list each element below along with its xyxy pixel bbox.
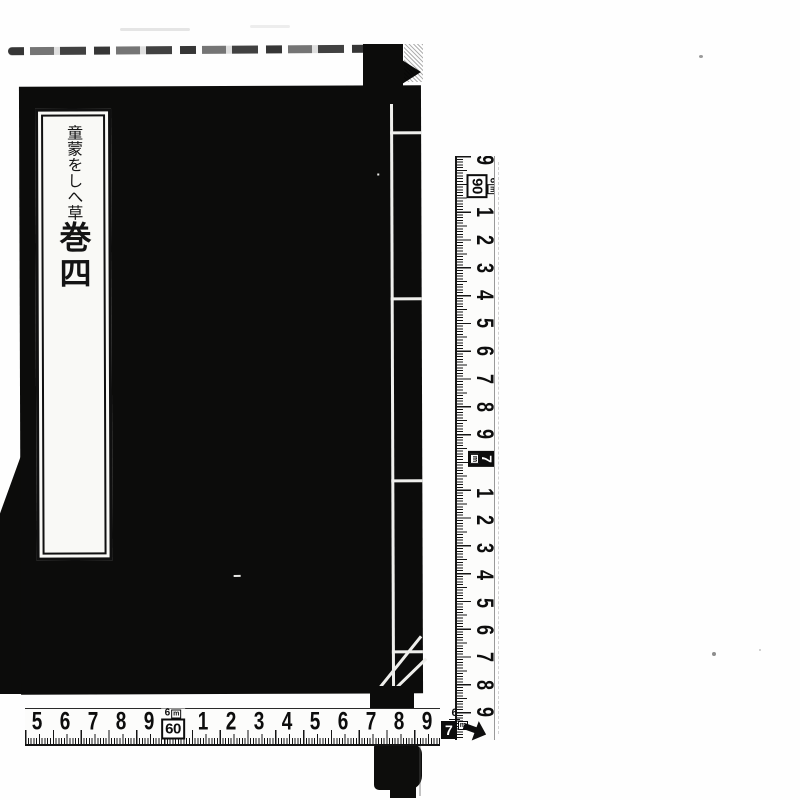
- scan-noise-streak: [8, 45, 368, 56]
- ruler-number: 7: [366, 710, 377, 735]
- ruler-number: 3: [472, 263, 495, 273]
- meter-value: 6: [449, 708, 459, 720]
- ruler-number: 6: [472, 346, 495, 356]
- ruler-number: 9: [472, 707, 495, 717]
- meter-unit: m: [470, 454, 479, 464]
- ruler-number: 3: [254, 710, 265, 735]
- cover-speck: [377, 173, 379, 175]
- title-label-text: 童蒙をしへ草巻四: [57, 116, 91, 552]
- book-cover: 童蒙をしへ草巻四: [19, 85, 423, 694]
- ruler-number-partial: 9: [472, 156, 495, 165]
- meter-marker-6m60: 6m60: [161, 709, 185, 740]
- binding-thread-horizontal-3: [391, 479, 422, 482]
- title-label-inner-border: 童蒙をしへ草巻四: [41, 114, 107, 554]
- meter-marker-header: 6m: [165, 709, 182, 719]
- ruler-number: 8: [472, 680, 495, 690]
- bottom-clamp-shadow: [419, 744, 421, 796]
- ruler-number: 5: [32, 710, 43, 735]
- scan-speck: [759, 649, 761, 651]
- scan-speck: [699, 55, 703, 58]
- ruler-number: 4: [472, 570, 495, 580]
- ruler-number: 8: [394, 710, 405, 735]
- ruler-number: 2: [226, 710, 237, 735]
- ruler-number: 5: [472, 598, 495, 608]
- ruler-number: 9: [472, 429, 495, 439]
- horizontal-ruler-end-marker: 6 7 m: [441, 708, 468, 739]
- meter-unit: m: [488, 184, 496, 194]
- top-clamp: [363, 44, 403, 104]
- binding-thread-horizontal-1: [390, 131, 421, 134]
- bottom-clamp: [374, 744, 422, 790]
- ruler-number: 6: [60, 710, 71, 735]
- meter-marker-box: 6m90: [467, 174, 496, 198]
- decimeter-value: 7: [441, 721, 457, 739]
- ruler-number: 4: [472, 290, 495, 300]
- ruler-number: 9: [144, 710, 155, 735]
- ruler-number: 6: [472, 625, 495, 635]
- cover-speck: [234, 575, 241, 577]
- ruler-number: 5: [472, 318, 495, 328]
- scan-speck: [712, 652, 716, 656]
- ruler-number: 6: [338, 710, 349, 735]
- horizontal-ruler-content: 567896m60123456789: [25, 709, 440, 744]
- ruler-number: 3: [472, 543, 495, 553]
- book-volume: 巻四: [54, 220, 92, 292]
- title-label: 童蒙をしへ草巻四: [35, 108, 113, 560]
- ruler-number: 1: [472, 488, 495, 498]
- centimeter-value: 90: [467, 174, 488, 198]
- meter-value: 6: [165, 709, 171, 719]
- scanned-book-photograph: 童蒙をしへ草巻四 96m901234567897m123456789 56789…: [0, 0, 800, 800]
- meter-value: 6: [488, 178, 496, 184]
- meter-marker-6m90: 6m90: [467, 174, 496, 198]
- binding-thread-horizontal-2: [391, 297, 422, 300]
- top-clamp-speckle: [404, 44, 423, 82]
- centimeter-value: 60: [161, 719, 185, 740]
- book-title: 童蒙をしへ草: [64, 124, 83, 220]
- ruler-number: 5: [310, 710, 321, 735]
- ruler-number: 8: [116, 710, 127, 735]
- meter-marker-box-black: 7m: [468, 451, 495, 467]
- ruler-number: 2: [472, 515, 495, 525]
- meter-value: 7: [480, 455, 494, 463]
- vertical-tape-measure: 96m901234567897m123456789: [455, 156, 495, 740]
- horizontal-tape-measure: 567896m60123456789: [25, 708, 440, 746]
- meter-marker-box: 6m60: [161, 709, 185, 740]
- scan-smudge: [250, 25, 290, 28]
- bottom-clamp-tail: [390, 786, 416, 798]
- ruler-number: 8: [472, 402, 495, 412]
- vertical-ruler-content: 96m901234567897m123456789: [457, 156, 495, 740]
- scan-smudge: [120, 28, 190, 31]
- ruler-number: 4: [282, 710, 293, 735]
- tape-edge-perforation: [498, 162, 499, 734]
- meter-unit: m: [171, 710, 181, 719]
- ruler-number: 1: [198, 710, 209, 735]
- ruler-number: 1: [472, 207, 495, 217]
- ruler-number: 7: [472, 374, 495, 384]
- ruler-number: 7: [472, 652, 495, 662]
- meter-marker-header: 6m: [488, 178, 496, 195]
- ruler-number: 9: [422, 710, 433, 735]
- meter-marker-7m: 7m: [468, 451, 495, 467]
- ruler-number: 7: [88, 710, 99, 735]
- ruler-number: 2: [472, 235, 495, 245]
